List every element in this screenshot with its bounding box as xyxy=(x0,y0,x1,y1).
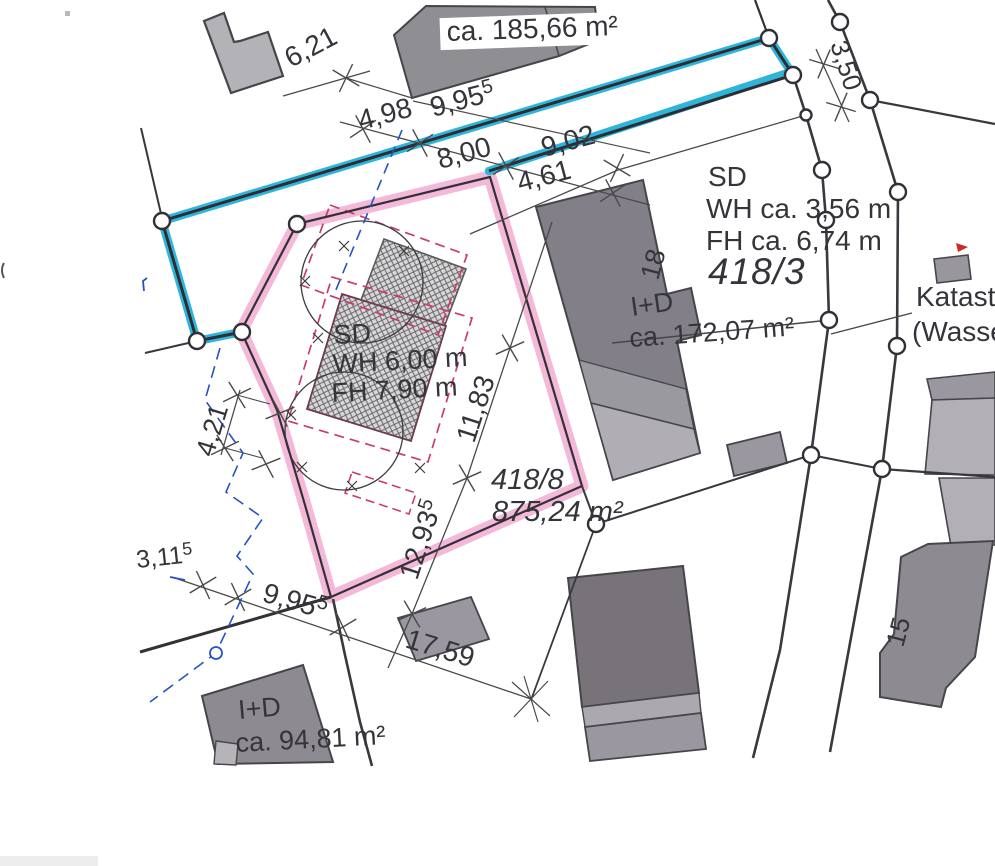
svg-text:875,24 m²: 875,24 m² xyxy=(492,496,624,528)
svg-text:ca. 185,66 m²: ca. 185,66 m² xyxy=(446,10,618,47)
svg-text:SD: SD xyxy=(708,161,747,192)
svg-text:I+D: I+D xyxy=(629,286,676,322)
svg-text:I+D: I+D xyxy=(237,691,282,725)
svg-text:418/8: 418/8 xyxy=(491,464,564,496)
svg-text:Katast: Katast xyxy=(916,281,995,312)
svg-text:SD: SD xyxy=(333,318,372,350)
svg-text:(Wasse: (Wasse xyxy=(912,316,995,347)
svg-text:WH ca. 3,56 m: WH ca. 3,56 m xyxy=(706,193,891,224)
svg-text:418/3: 418/3 xyxy=(708,251,806,292)
